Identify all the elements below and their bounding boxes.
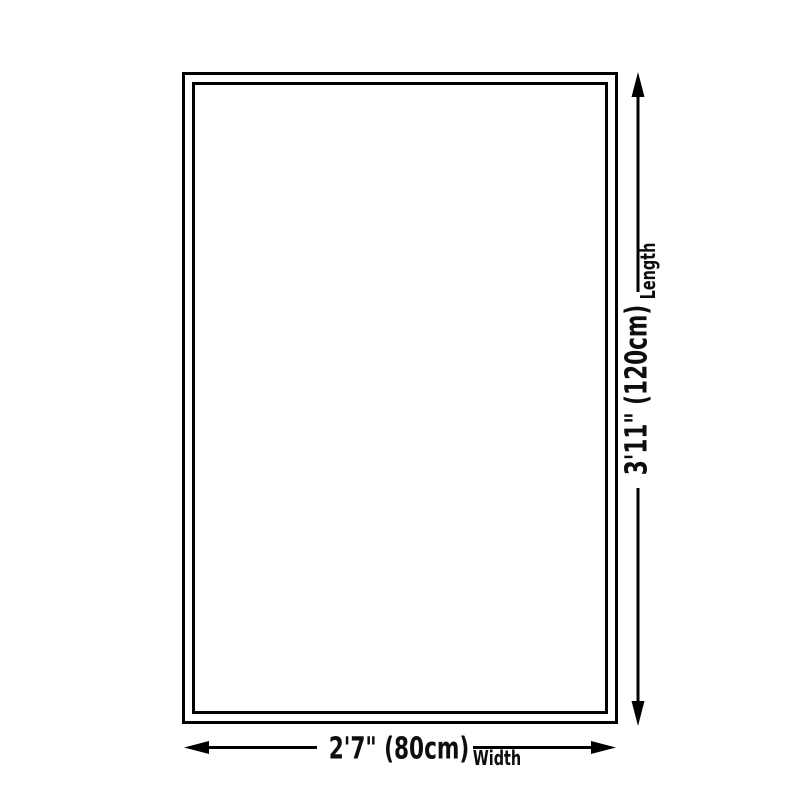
length-label: Length xyxy=(637,243,659,300)
arrow-left-icon xyxy=(184,741,209,754)
length-value: 3'11" (120cm) xyxy=(621,305,654,476)
arrow-right-icon xyxy=(591,741,616,754)
width-value: 2'7" (80cm) xyxy=(329,733,470,766)
arrow-down-icon xyxy=(632,701,645,726)
rug-dimension-diagram: 3'11" (120cm) Length 2'7" (80cm) Width xyxy=(0,0,800,800)
width-label: Width xyxy=(473,747,521,769)
dimension-arrows xyxy=(0,0,800,800)
arrow-up-icon xyxy=(632,72,645,97)
